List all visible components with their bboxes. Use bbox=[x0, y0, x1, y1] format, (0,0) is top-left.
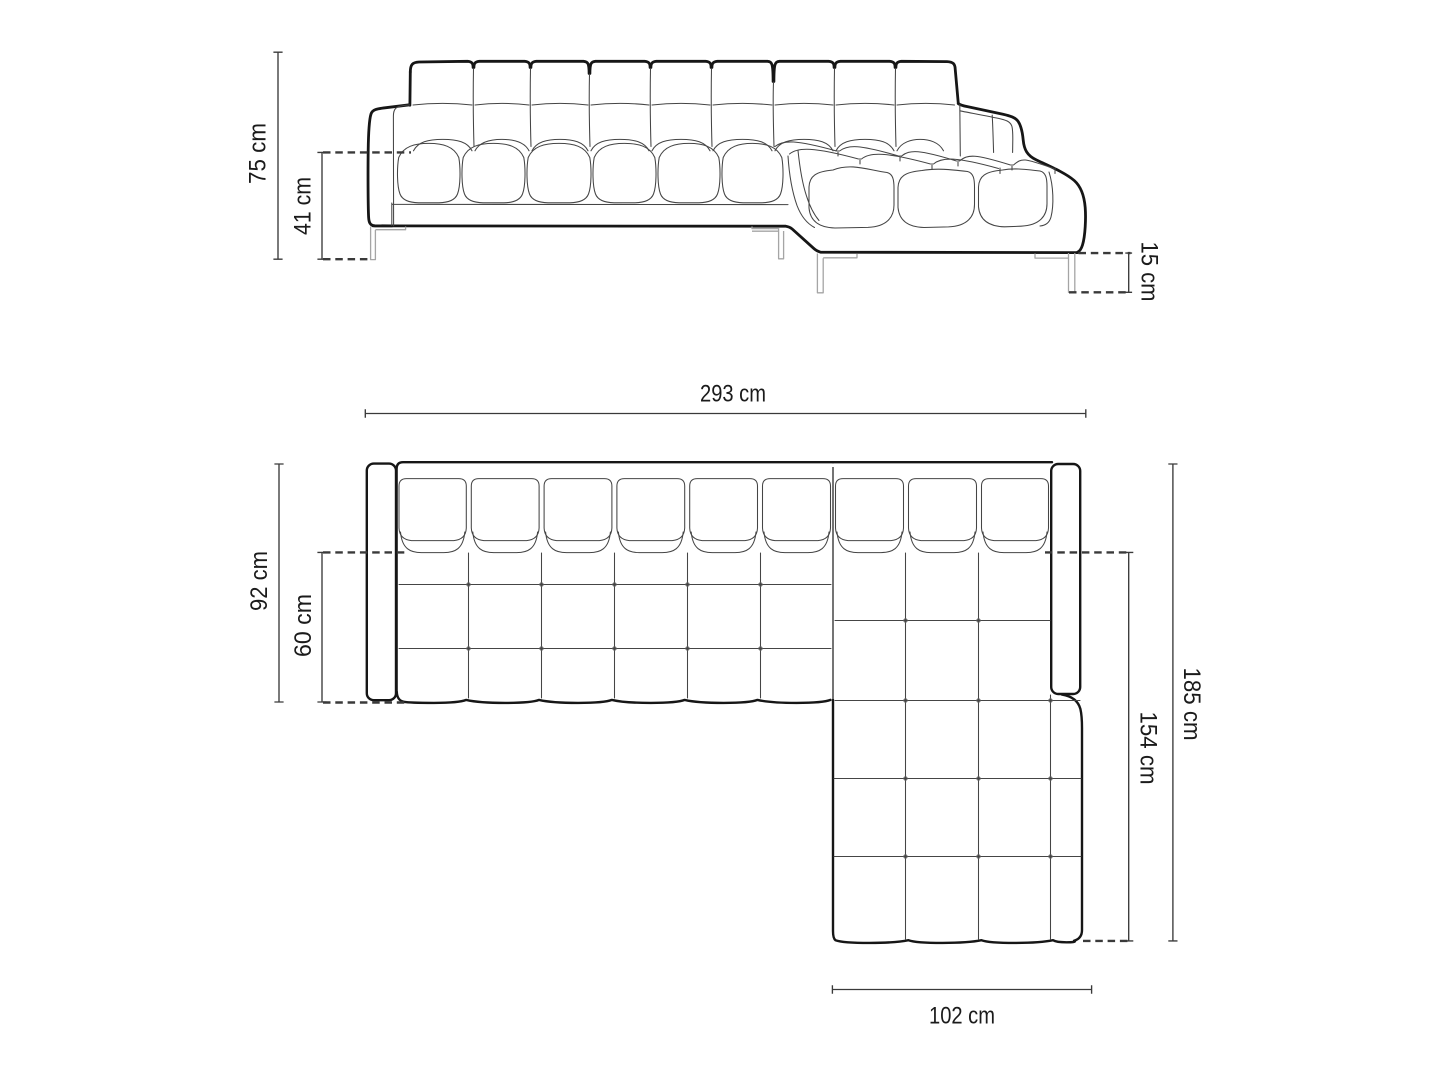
svg-text:60 cm: 60 cm bbox=[290, 594, 317, 657]
svg-text:185 cm: 185 cm bbox=[1178, 668, 1205, 741]
svg-text:92 cm: 92 cm bbox=[246, 551, 273, 611]
svg-text:102 cm: 102 cm bbox=[929, 1003, 995, 1030]
svg-text:154 cm: 154 cm bbox=[1135, 712, 1162, 785]
svg-text:41 cm: 41 cm bbox=[290, 177, 317, 235]
svg-text:75 cm: 75 cm bbox=[245, 123, 272, 184]
svg-text:293 cm: 293 cm bbox=[700, 381, 766, 408]
svg-text:15 cm: 15 cm bbox=[1136, 242, 1163, 302]
